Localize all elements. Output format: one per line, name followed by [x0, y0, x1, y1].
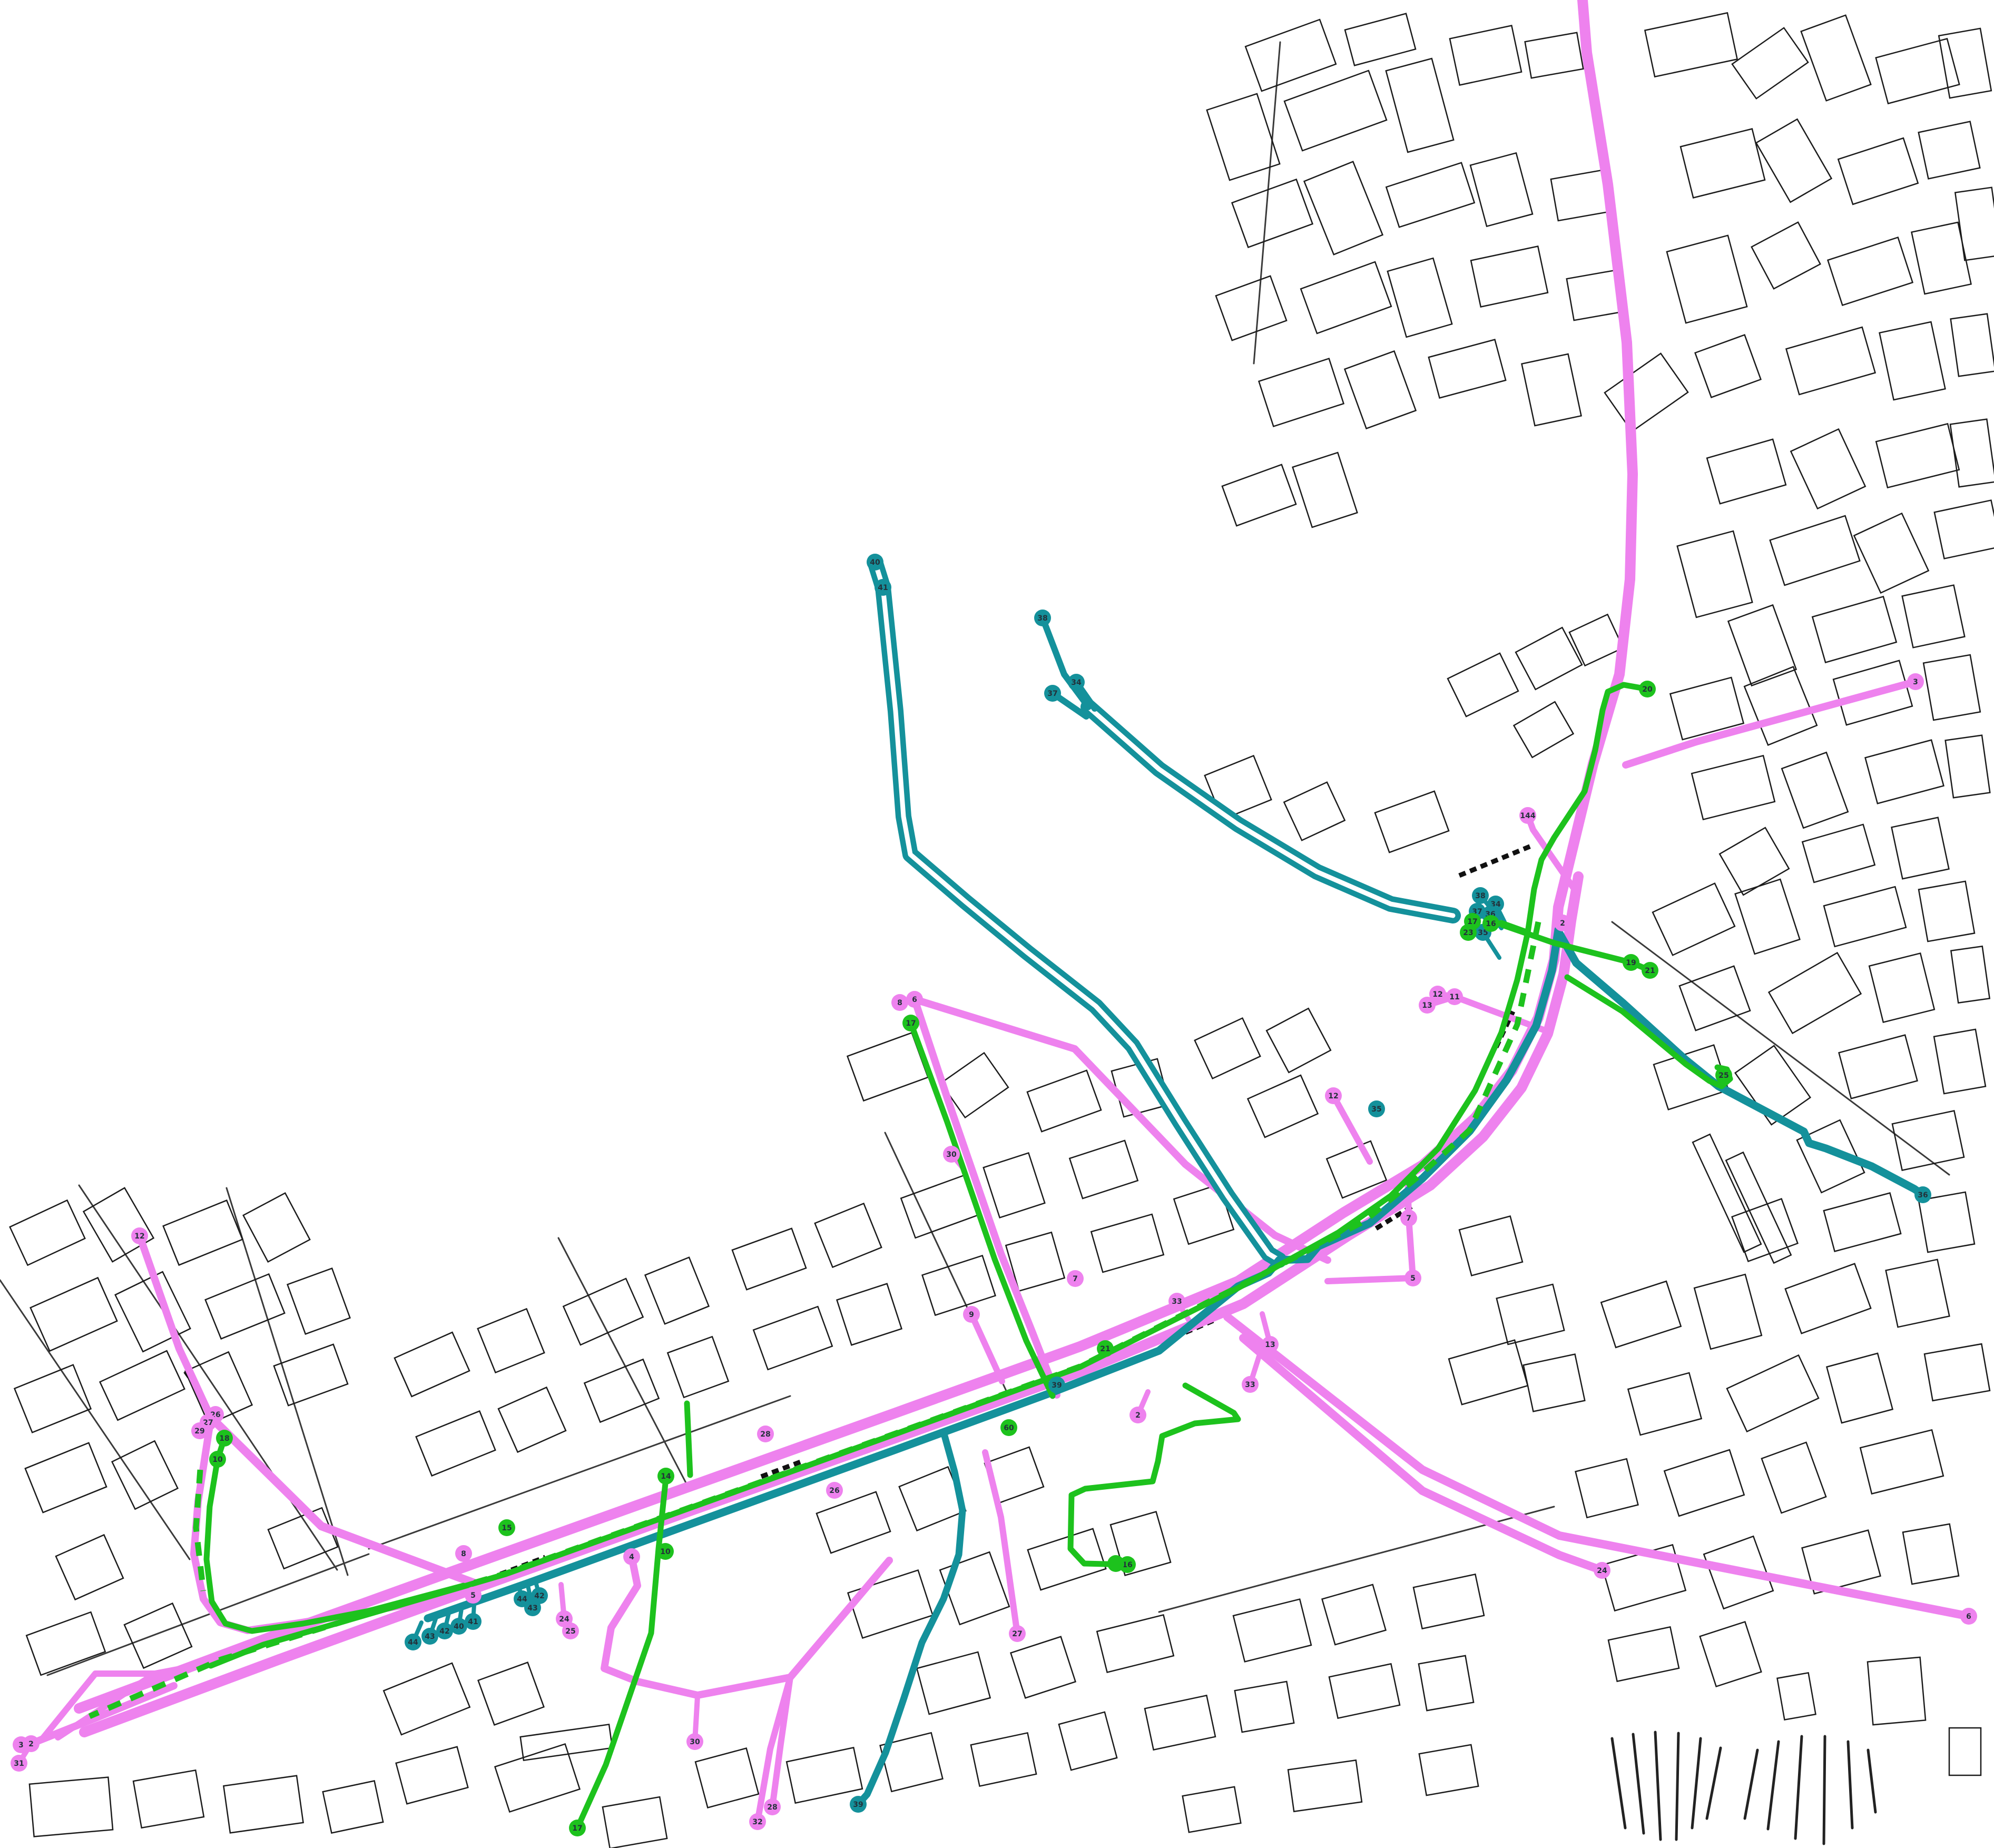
network-node-43[interactable]: 43 [524, 1599, 541, 1616]
node-label: 44 [517, 1595, 527, 1604]
network-node-39[interactable]: 39 [1048, 1377, 1065, 1393]
node-label: 10 [212, 1456, 223, 1464]
network-node-24[interactable]: 24 [1594, 1562, 1610, 1579]
network-node-37[interactable]: 37 [1044, 685, 1061, 702]
node-label: 41 [468, 1618, 478, 1626]
node-label: 6 [912, 996, 917, 1004]
network-node-40[interactable]: 40 [867, 554, 883, 571]
node-label: 2 [28, 1740, 34, 1748]
node-label: 12 [1328, 1092, 1338, 1100]
node-label: 18 [219, 1434, 229, 1443]
network-node-3[interactable]: 3 [1907, 673, 1924, 690]
node-label: 34 [1071, 679, 1082, 687]
network-node-12[interactable]: 12 [1325, 1087, 1342, 1104]
network-node-25[interactable]: 25 [562, 1623, 579, 1639]
node-label: 21 [1645, 967, 1655, 975]
node-label: 6 [1966, 1613, 1971, 1621]
network-node-39[interactable]: 39 [850, 1796, 867, 1813]
node-label: 19 [1626, 959, 1636, 967]
network-node-21[interactable]: 21 [1097, 1340, 1114, 1357]
network-node-10[interactable]: 10 [657, 1543, 674, 1560]
node-label: 36 [1918, 1191, 1928, 1200]
network-node-4[interactable]: 4 [623, 1548, 640, 1565]
network-node-28[interactable]: 28 [764, 1798, 781, 1815]
network-node-2[interactable]: 2 [1129, 1407, 1146, 1423]
node-label: 39 [853, 1801, 863, 1809]
node-label: 42 [534, 1592, 544, 1600]
node-label: 20 [1642, 685, 1653, 694]
network-node-31[interactable]: 31 [11, 1755, 27, 1772]
network-node-38[interactable]: 38 [1034, 610, 1051, 626]
node-label: 33 [1245, 1381, 1255, 1389]
network-node-38[interactable]: 38 [1472, 887, 1489, 904]
node-label: 5 [1410, 1274, 1416, 1283]
node-label: 40 [454, 1623, 464, 1631]
node-label: 28 [767, 1803, 777, 1812]
node-label: 30 [946, 1151, 957, 1159]
node-label: 29 [194, 1427, 204, 1436]
network-node-15[interactable]: 15 [498, 1519, 515, 1536]
network-node-2[interactable]: 2 [1554, 915, 1571, 931]
node-label: 38 [1037, 614, 1047, 623]
node-label: 14 [661, 1472, 671, 1481]
node-label: 23 [1463, 929, 1473, 937]
node-label: 3 [1913, 678, 1918, 686]
node-label: 10 [660, 1548, 671, 1556]
network-node-33[interactable]: 33 [1168, 1293, 1185, 1310]
node-label: 25 [1718, 1072, 1728, 1080]
network-node-13[interactable]: 13 [1262, 1336, 1279, 1353]
network-node-10[interactable]: 10 [209, 1451, 226, 1468]
node-label: 144 [1520, 812, 1535, 820]
node-label: 42 [439, 1627, 449, 1636]
node-label: 12 [1432, 990, 1442, 999]
network-node-30[interactable]: 30 [943, 1146, 960, 1163]
node-label: 41 [878, 584, 888, 592]
network-node-21[interactable]: 21 [1642, 962, 1658, 979]
green-node-circle[interactable] [1107, 1555, 1124, 1572]
node-label: 37 [1047, 690, 1057, 698]
network-node-11[interactable]: 11 [1446, 988, 1463, 1005]
network-node-8[interactable]: 8 [891, 994, 908, 1011]
network-node-6[interactable]: 6 [906, 991, 923, 1008]
network-node-29[interactable]: 29 [191, 1422, 208, 1439]
network-node-20[interactable]: 20 [1639, 681, 1656, 697]
node-label: 7 [1073, 1275, 1078, 1283]
node-label: 15 [502, 1524, 512, 1532]
green-route-line [687, 1403, 690, 1475]
city-network-map[interactable]: 1226272932318524254282630283227683097233… [0, 0, 1994, 1848]
node-label: 4 [629, 1553, 634, 1561]
network-node-34[interactable]: 34 [1068, 674, 1085, 691]
node-label: 7 [1406, 1214, 1411, 1223]
node-label: 8 [461, 1550, 466, 1558]
node-label: 43 [527, 1604, 537, 1613]
node-label: 21 [1100, 1345, 1110, 1353]
network-node-27[interactable]: 27 [1009, 1625, 1026, 1642]
network-node-26[interactable]: 26 [826, 1482, 843, 1499]
node-label: 40 [870, 558, 880, 567]
node-label: 17 [572, 1824, 582, 1833]
network-node-32[interactable]: 32 [749, 1813, 766, 1830]
network-node-36[interactable]: 36 [1914, 1186, 1931, 1203]
network-node-17[interactable]: 17 [569, 1820, 586, 1836]
node-label: 13 [1422, 1001, 1432, 1010]
node-label: 28 [760, 1430, 770, 1439]
node-label: 17 [906, 1019, 916, 1028]
node-label: 11 [1449, 993, 1459, 1001]
node-label: 33 [1172, 1297, 1182, 1306]
network-node-25[interactable]: 25 [1715, 1067, 1732, 1084]
network-node-5[interactable]: 5 [465, 1587, 482, 1604]
network-node-18[interactable]: 18 [216, 1430, 233, 1447]
node-label: 43 [425, 1633, 435, 1641]
network-node-2[interactable]: 2 [23, 1735, 40, 1752]
node-label: 2 [1135, 1411, 1141, 1420]
network-node-8[interactable]: 8 [455, 1545, 472, 1562]
node-label: 32 [752, 1818, 762, 1826]
node-label: 24 [559, 1615, 569, 1624]
node-label: 12 [134, 1232, 144, 1241]
network-node-12[interactable]: 12 [131, 1227, 148, 1244]
network-node-35[interactable]: 35 [1368, 1100, 1385, 1117]
node-label: 25 [565, 1627, 575, 1636]
network-node-17[interactable]: 17 [902, 1015, 919, 1031]
node-label: 8 [897, 999, 902, 1007]
network-node-6[interactable]: 6 [1960, 1608, 1977, 1625]
node-label: 13 [1265, 1341, 1275, 1349]
node-label: 9 [969, 1311, 974, 1319]
network-node-60[interactable]: 60 [1000, 1419, 1017, 1436]
node-label: 38 [1475, 892, 1485, 900]
network-node-16[interactable]: 16 [1482, 915, 1499, 932]
network-node-144[interactable]: 144 [1519, 807, 1536, 824]
node-label: 39 [1052, 1381, 1062, 1390]
node-label: 35 [1371, 1105, 1381, 1114]
node-label: 26 [829, 1487, 839, 1495]
network-node-5[interactable]: 5 [1404, 1270, 1421, 1286]
network-node-7[interactable]: 7 [1400, 1210, 1417, 1226]
node-label: 31 [14, 1759, 24, 1768]
network-node-7[interactable]: 7 [1067, 1270, 1084, 1287]
node-label: 27 [1012, 1630, 1022, 1638]
network-node-14[interactable]: 14 [657, 1468, 674, 1485]
network-node[interactable] [1107, 1555, 1124, 1572]
network-node-30[interactable]: 30 [686, 1733, 703, 1750]
network-node-43[interactable]: 43 [421, 1628, 438, 1645]
network-node-19[interactable]: 19 [1623, 954, 1639, 971]
network-node-41[interactable]: 41 [465, 1613, 482, 1630]
network-node-44[interactable]: 44 [405, 1634, 421, 1650]
node-label: 30 [690, 1738, 700, 1746]
network-node-13[interactable]: 13 [1419, 997, 1436, 1014]
node-label: 24 [1597, 1567, 1607, 1575]
node-label: 16 [1486, 920, 1496, 928]
network-node-23[interactable]: 23 [1460, 924, 1477, 941]
node-label: 2 [1560, 919, 1565, 928]
network-node-9[interactable]: 9 [963, 1306, 980, 1323]
node-label: 44 [408, 1638, 418, 1647]
network-node-41[interactable]: 41 [875, 579, 891, 596]
pier-line [1824, 1736, 1825, 1844]
node-label: 5 [470, 1591, 476, 1600]
node-label: 60 [1004, 1424, 1014, 1432]
network-node-28[interactable]: 28 [757, 1426, 774, 1442]
map-canvas: 1226272932318524254282630283227683097233… [0, 0, 1994, 1848]
network-node-33[interactable]: 33 [1242, 1376, 1259, 1393]
